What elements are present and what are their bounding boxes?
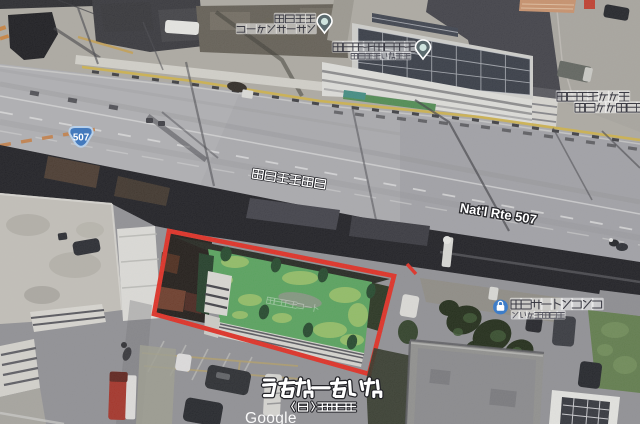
svg-text:507: 507: [73, 133, 90, 144]
svg-text:Google: Google: [245, 410, 297, 424]
